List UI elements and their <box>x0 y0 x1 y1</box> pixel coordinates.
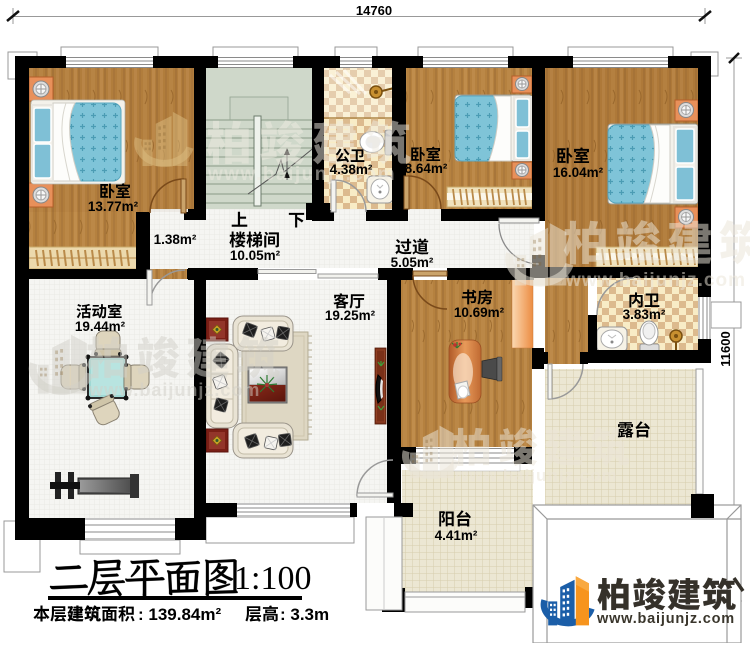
svg-text:13.77m²: 13.77m² <box>88 199 139 214</box>
svg-text:4.41m²: 4.41m² <box>435 528 478 543</box>
svg-text:www.baijunjz.com: www.baijunjz.com <box>596 611 735 627</box>
svg-text:: 3.3m: : 3.3m <box>280 605 329 624</box>
svg-text:1.38m²: 1.38m² <box>154 232 197 247</box>
svg-text:www.baijunjz.com: www.baijunjz.com <box>88 380 260 400</box>
svg-text:11600: 11600 <box>718 331 733 366</box>
svg-text:www.baijunjz.com: www.baijunjz.com <box>565 270 746 291</box>
svg-text:3.83m²: 3.83m² <box>623 307 666 322</box>
svg-text:19.44m²: 19.44m² <box>75 319 126 334</box>
svg-text:10.05m²: 10.05m² <box>230 248 281 263</box>
svg-text:5.05m²: 5.05m² <box>391 255 434 270</box>
svg-text:www.baijunjz.com: www.baijunjz.com <box>454 466 618 485</box>
svg-text:8.64m²: 8.64m² <box>405 161 448 176</box>
svg-text:: 139.84m²: : 139.84m² <box>138 605 221 624</box>
svg-text:14760: 14760 <box>356 3 392 18</box>
svg-text:10.69m²: 10.69m² <box>454 305 505 320</box>
svg-text:1:100: 1:100 <box>234 560 311 597</box>
svg-text:19.25m²: 19.25m² <box>325 308 376 323</box>
svg-text:16.04m²: 16.04m² <box>553 165 604 180</box>
svg-text:4.38m²: 4.38m² <box>330 162 373 177</box>
